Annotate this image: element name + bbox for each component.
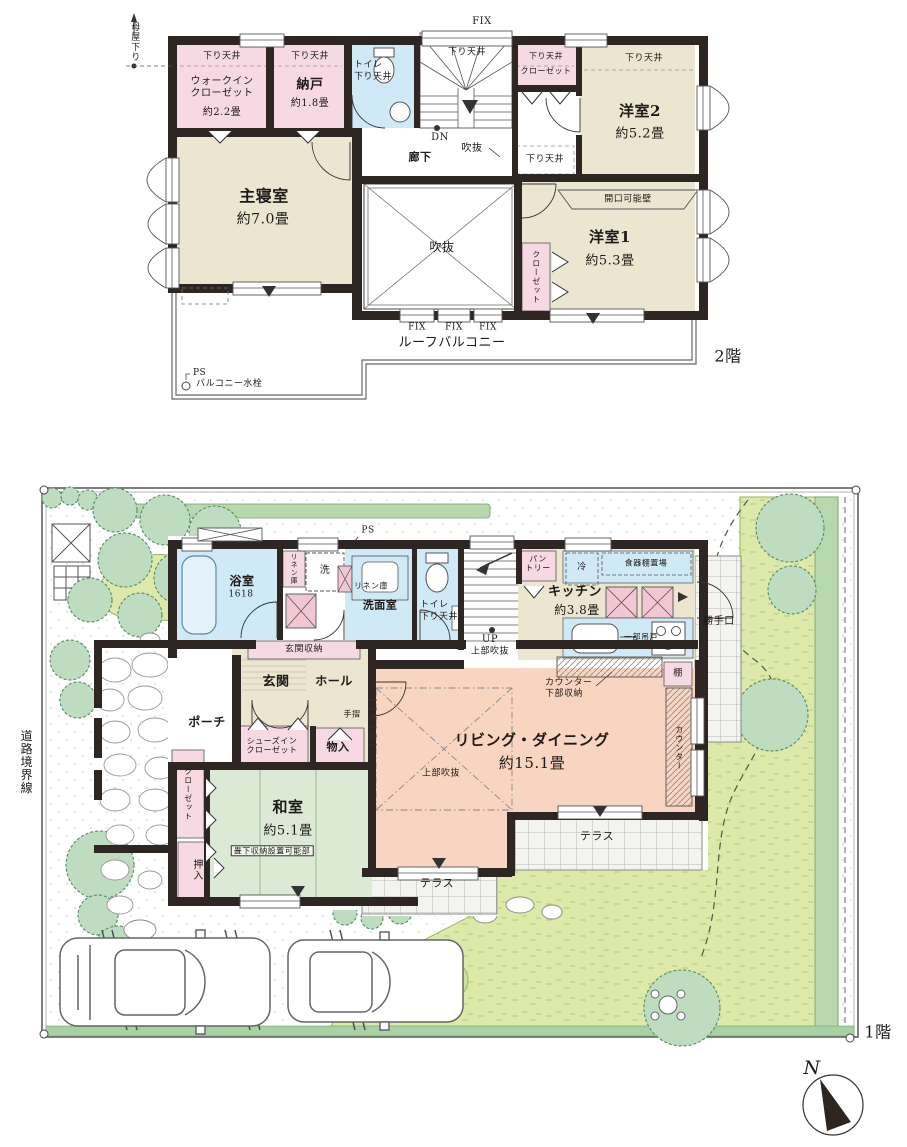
monoire-label: 物入 — [327, 742, 350, 755]
room-label-toilet1: トイレ — [420, 600, 449, 611]
counter-storage-note: カウンター 下部収納 — [545, 678, 593, 699]
void-label: 吹抜 — [429, 240, 454, 254]
room-size-wic: 約2.2畳 — [203, 107, 241, 119]
fix-window-label: FIX — [408, 323, 426, 334]
room-size-nando: 約1.8畳 — [291, 98, 329, 110]
room-label-genkan: 玄関 — [262, 674, 289, 689]
linen-label: リネン庫 — [354, 581, 388, 590]
closet-label: クローゼット — [521, 66, 572, 75]
oshiire-label: 押入 — [190, 859, 202, 881]
closet-label: クローゼット — [183, 767, 192, 821]
handrail-label: 手摺 — [344, 709, 361, 718]
room-label-senmen: 洗面室 — [363, 600, 398, 613]
ceiling-note: 下り天井 — [529, 51, 563, 60]
ceiling-note: 下り天井 — [526, 155, 564, 166]
room-size-washitsu: 約5.1畳 — [263, 823, 312, 838]
room-label-hall: ホール — [315, 674, 353, 688]
terrace-label: テラス — [580, 831, 614, 844]
stairs-dn-label: DN — [431, 132, 449, 144]
room-label-nando: 納戸 — [296, 77, 323, 92]
pantry-label: パン トリー — [525, 555, 551, 574]
room-label-bath: 浴室 — [229, 574, 254, 588]
corridor-label: 廊下 — [409, 152, 432, 165]
note-moya-sagari: 母屋下り — [129, 22, 140, 62]
fridge-label: 冷 — [577, 563, 587, 574]
fix-window-label: FIX — [479, 323, 497, 334]
balcony-faucet-label: バルコニー水栓 — [196, 379, 262, 390]
room-label-living: リビング・ダイニング — [454, 732, 609, 750]
closet-label: クローゼット — [531, 250, 540, 304]
openable-wall-note: 開口可能壁 — [604, 195, 652, 206]
ceiling-note: 下り天井 — [354, 72, 392, 83]
washer-label: 洗 — [320, 565, 331, 577]
ceiling-note: 下り天井 — [420, 612, 458, 623]
roof-balcony-label: ルーフバルコニー — [399, 335, 506, 350]
road-boundary-label: 道路境界線 — [19, 730, 33, 795]
fix-window-label: FIX — [472, 16, 492, 28]
ceiling-note: 下り天井 — [448, 48, 486, 59]
porch-label: ポーチ — [188, 715, 226, 729]
sic-label: シューズイン クローゼット — [247, 737, 298, 756]
ceiling-note: 下り天井 — [625, 54, 663, 65]
ps-label: PS — [361, 526, 374, 537]
room-label-yoshitsu2: 洋室2 — [619, 103, 661, 121]
room-size-kitchen: 約3.8畳 — [554, 603, 600, 617]
room-label-washitsu: 和室 — [272, 799, 303, 817]
room-size-living: 約15.1畳 — [499, 755, 565, 773]
room-size-master: 約7.0畳 — [237, 212, 290, 229]
room-size-bath: 1618 — [229, 590, 254, 601]
room-size-yoshitsu1: 約5.3畳 — [585, 253, 634, 268]
floor-plan-graphics — [0, 0, 907, 1147]
room-label-yoshitsu1: 洋室1 — [589, 229, 631, 247]
floor-label-1f: 1階 — [864, 1024, 891, 1043]
void-above-label: 上部吹抜 — [422, 769, 460, 780]
hedge-bottom — [46, 1026, 854, 1036]
hedge-right — [815, 497, 838, 1028]
genkan-storage-label: 玄関収納 — [285, 645, 323, 656]
compass-north-label: N — [803, 1057, 820, 1079]
room-label-kitchen: キッチン — [548, 584, 602, 599]
ps-label: PS — [193, 368, 206, 379]
tatami-storage-note: 畳下収納設置可能部 — [231, 845, 314, 856]
stairs-up-label: UP — [482, 634, 498, 646]
backdoor-label: 勝手口 — [703, 616, 735, 628]
car — [288, 932, 463, 1030]
room-label-master: 主寝室 — [239, 188, 289, 207]
ceiling-note: 下り天井 — [291, 52, 329, 63]
room-label-toilet2: トイレ — [354, 60, 383, 71]
void-above-label: 上部吹抜 — [471, 647, 509, 658]
fix-window-label: FIX — [445, 323, 463, 334]
ceiling-note: 下り天井 — [203, 52, 241, 63]
shelf-label: 棚 — [673, 669, 683, 680]
room-label-wic: ウォークイン クローゼット — [191, 76, 254, 100]
hanging-cabinet-note: 一部吊戸 — [624, 632, 658, 641]
floor-plan-page: 母屋下り 下り天井 ウォークイン クローゼット 約2.2畳 下り天井 納戸 約1… — [0, 0, 907, 1147]
floor-label-2f: 2階 — [714, 348, 741, 367]
room-size-yoshitsu2: 約5.2畳 — [615, 126, 664, 141]
compass-icon — [803, 1075, 863, 1135]
car — [60, 930, 270, 1034]
cupboard-note: 食器棚置場 — [625, 558, 668, 567]
terrace-label: テラス — [420, 878, 454, 891]
void-small-label: 吹抜 — [462, 143, 483, 155]
counter-label: カウンター — [674, 726, 683, 771]
room-master — [177, 137, 352, 284]
linen-label: リネン庫 — [290, 553, 298, 585]
